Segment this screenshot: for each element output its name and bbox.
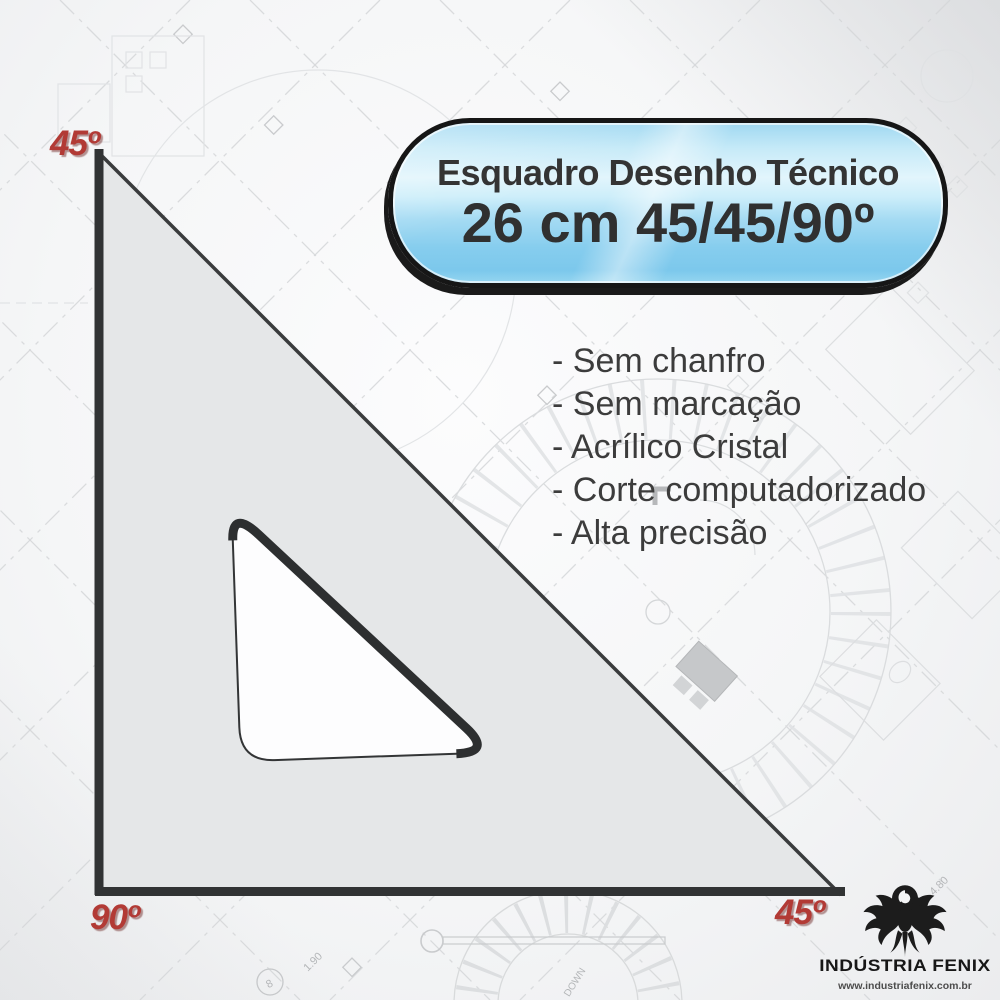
stair-number-label: 8 [264, 978, 275, 991]
product-title: Esquadro Desenho Técnico [437, 153, 899, 193]
feature-list: - Sem chanfro - Sem marcação - Acrílico … [552, 340, 926, 555]
down-label: DOWN [562, 966, 588, 999]
brand-logo: INDÚSTRIA FENIX www.industriafenix.com.b… [805, 868, 1000, 995]
feature-item: - Alta precisão [552, 512, 926, 555]
phoenix-icon [853, 868, 957, 958]
title-badge: Esquadro Desenho Técnico 26 cm 45/45/90º [388, 118, 948, 288]
feature-item: - Acrílico Cristal [552, 426, 926, 469]
brand-name: INDÚSTRIA FENIX [805, 958, 1000, 976]
feature-item: - Corte computadorizado [552, 469, 926, 512]
dimension-label: 1.90 [301, 950, 325, 974]
desk-plan [665, 641, 737, 713]
angle-label-top: 45º [50, 124, 99, 164]
feature-item: - Sem marcação [552, 383, 926, 426]
spiral-stair-small [257, 890, 682, 1000]
feature-item: - Sem chanfro [552, 340, 926, 383]
angle-label-bottom-left: 90º [90, 898, 139, 938]
product-infographic: 4.80 1.90 DOWN 8 Esquadro Desenho Técnic… [0, 0, 1000, 1000]
brand-website: www.industriafenix.com.br [805, 979, 1000, 995]
product-size-spec: 26 cm 45/45/90º [462, 194, 875, 253]
